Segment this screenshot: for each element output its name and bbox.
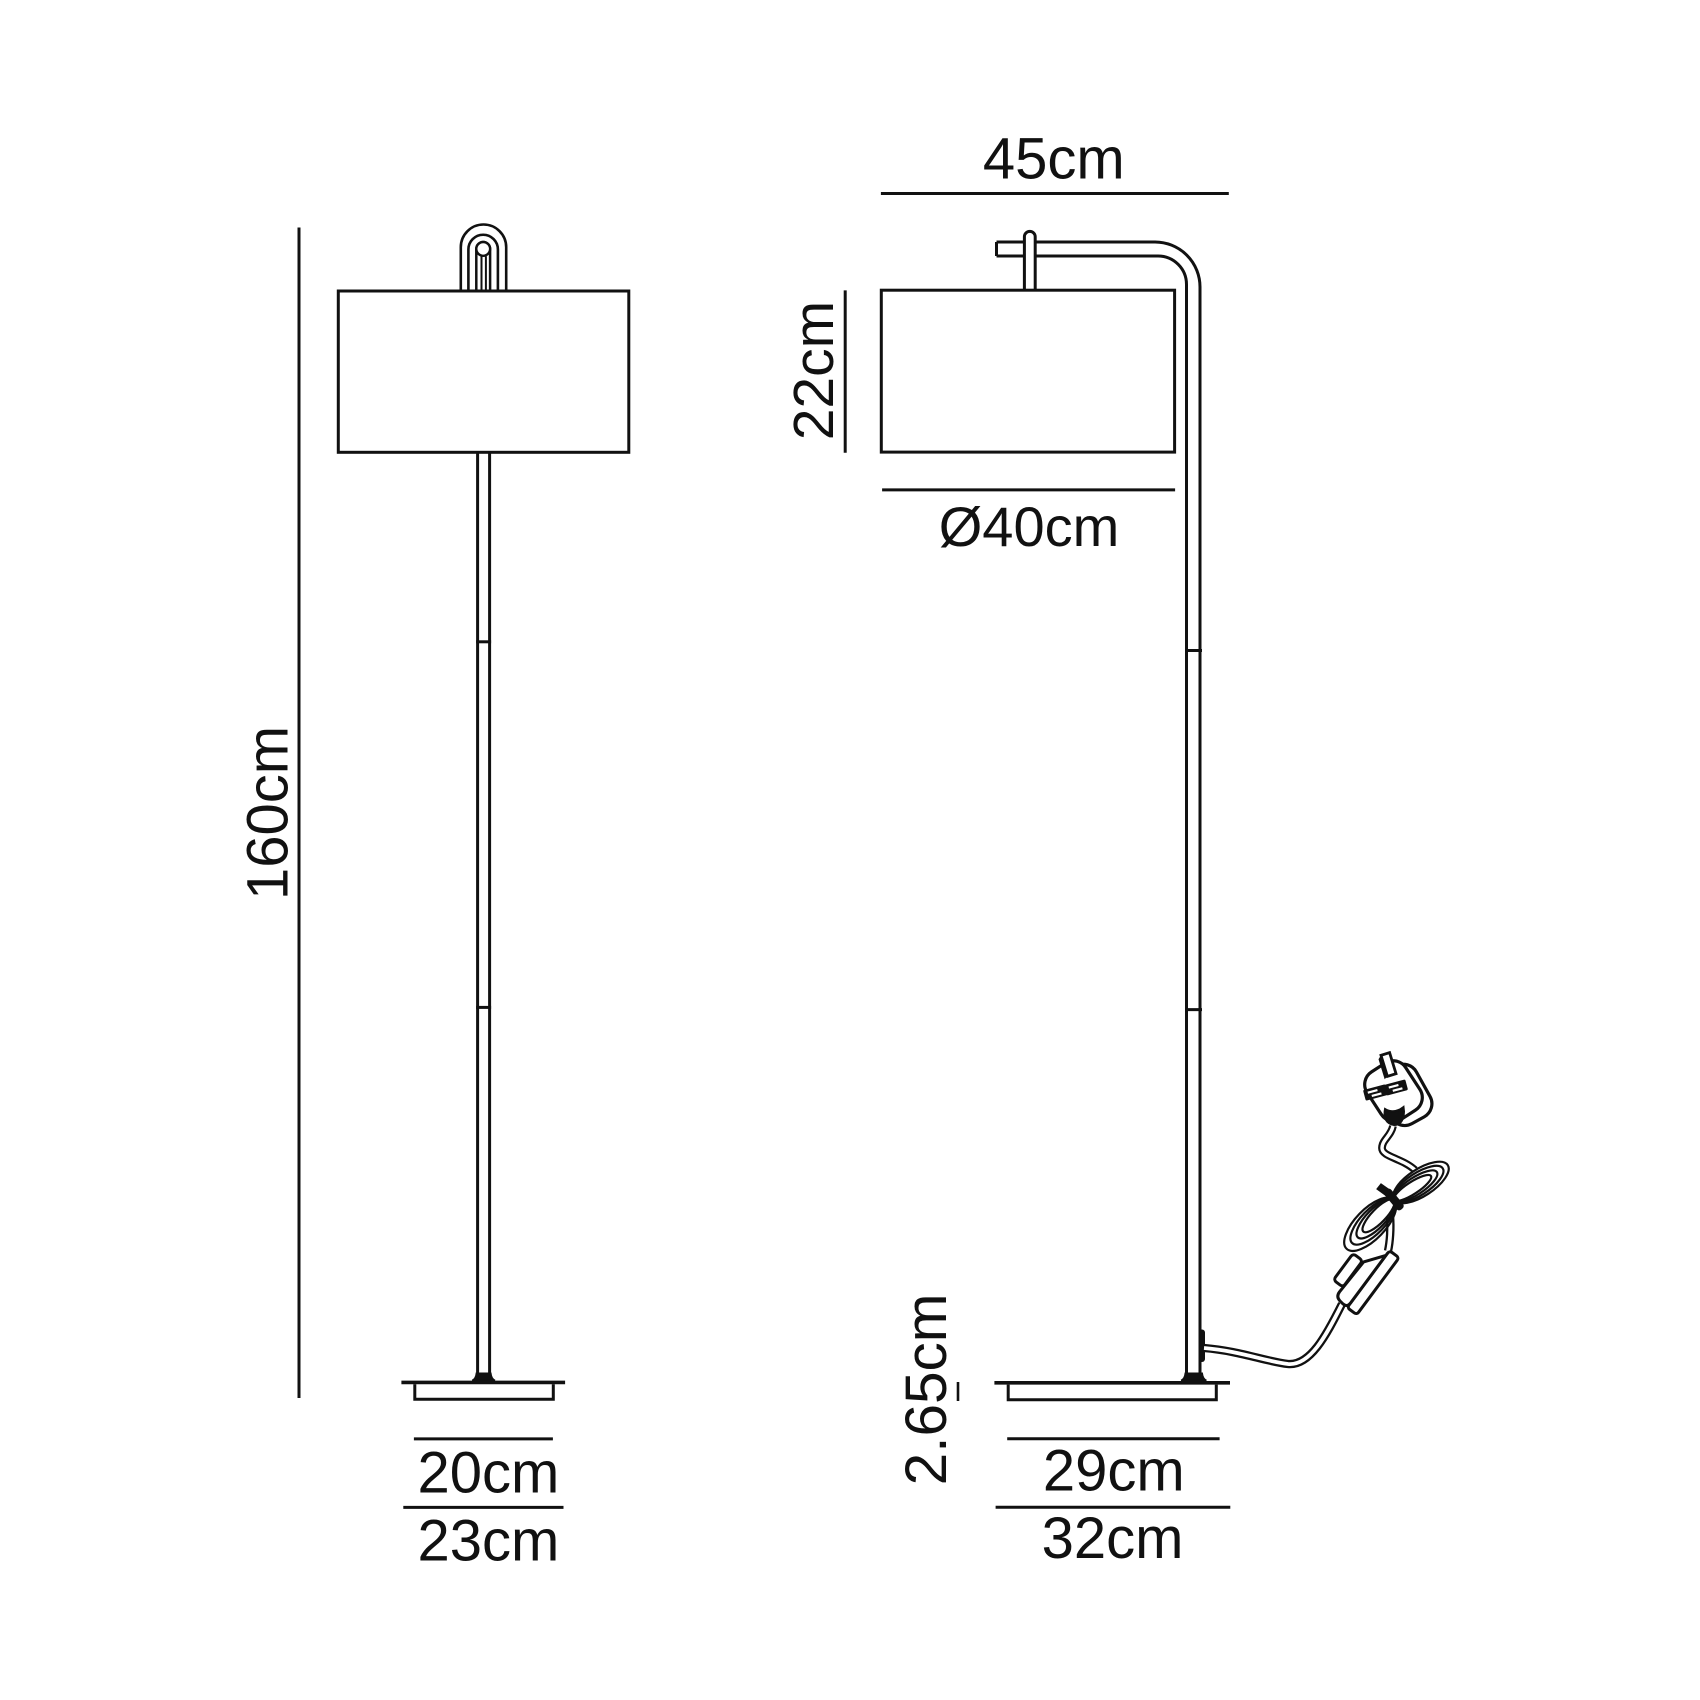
svg-text:160cm: 160cm [236,726,301,900]
svg-text:23cm: 23cm [417,1508,559,1573]
svg-text:22cm: 22cm [782,301,846,440]
svg-text:32cm: 32cm [1042,1506,1184,1571]
svg-text:Ø40cm: Ø40cm [939,495,1120,558]
svg-text:2.65cm: 2.65cm [894,1293,959,1485]
svg-text:45cm: 45cm [983,127,1125,192]
svg-text:29cm: 29cm [1043,1439,1185,1504]
svg-text:20cm: 20cm [417,1441,559,1506]
